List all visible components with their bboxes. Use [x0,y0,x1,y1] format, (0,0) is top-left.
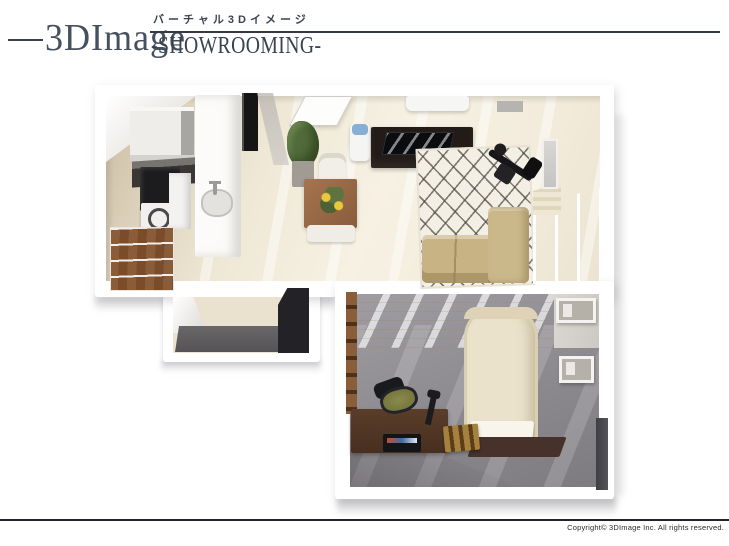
kitchen-upper-cabinet [130,107,194,161]
ceiling-vent [497,101,523,112]
open-closet [278,288,309,353]
water-server [350,123,370,161]
flower-arrangement [319,187,347,213]
island-counter [195,95,241,257]
shadow-under-bedroom [337,497,616,517]
dining-chair-bottom [307,225,355,242]
bed-rug [467,437,566,457]
header-rule-left [8,39,43,41]
floor-plan-render [95,85,619,513]
tall-black-cabinet [242,93,258,151]
faucet [213,181,217,195]
wall-shelf-box-2 [559,356,594,383]
subtitle-showrooming: -SHOWROOMING- [151,33,321,60]
sink [201,189,233,217]
dining-chair-top [319,153,346,181]
shadow-right-wall [614,115,628,495]
copyright-text: Copyright© 3DImage Inc. All rights reser… [567,523,724,532]
footer-rule [0,519,729,521]
laptop [383,434,421,452]
wall-ladder-rack [344,292,357,414]
sofa-chaise [488,207,529,283]
book-stool [443,424,480,453]
wood-shelf [110,227,174,291]
subtitle-japanese: バーチャル3Dイメージ [153,11,310,27]
air-conditioner [406,96,469,111]
kitchen-side-cabinet [169,173,191,229]
wall-mirror [542,139,558,189]
wall-shelf-box-1 [556,298,596,323]
dark-niche [596,418,608,490]
page: { "header": { "title": "3DImage", "subti… [0,0,729,546]
shadow-under-entrance [161,361,321,373]
